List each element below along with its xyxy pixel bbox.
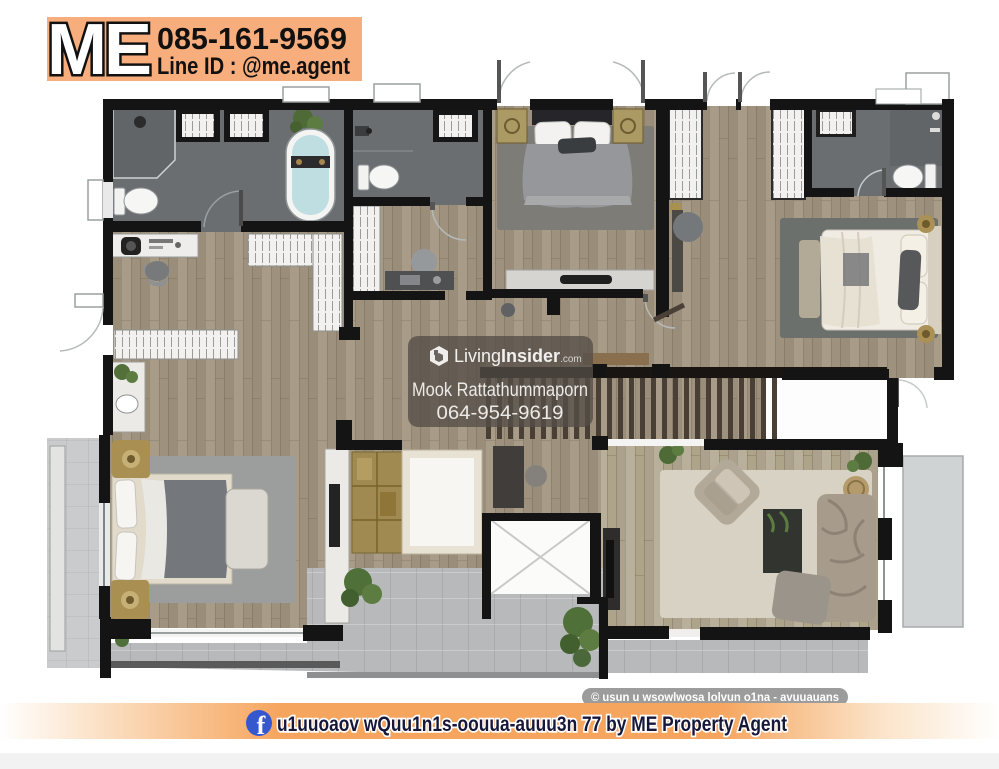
svg-text:085-161-9569: 085-161-9569: [157, 21, 347, 56]
svg-text:© usun u wsowlwosa lolvun o1na: © usun u wsowlwosa lolvun o1na - avuuaua…: [591, 692, 839, 704]
svg-text:f: f: [257, 711, 266, 740]
svg-text:064-954-9619: 064-954-9619: [437, 403, 564, 424]
svg-text:ME: ME: [47, 10, 150, 90]
svg-text:u1uuoaov wQuu1n1s-oouua-auuu3n: u1uuoaov wQuu1n1s-oouua-auuu3n 77 by ME …: [277, 713, 787, 736]
svg-text:Line ID : @me.agent: Line ID : @me.agent: [157, 53, 350, 80]
svg-text:Mook Rattathummaporn: Mook Rattathummaporn: [412, 379, 588, 401]
